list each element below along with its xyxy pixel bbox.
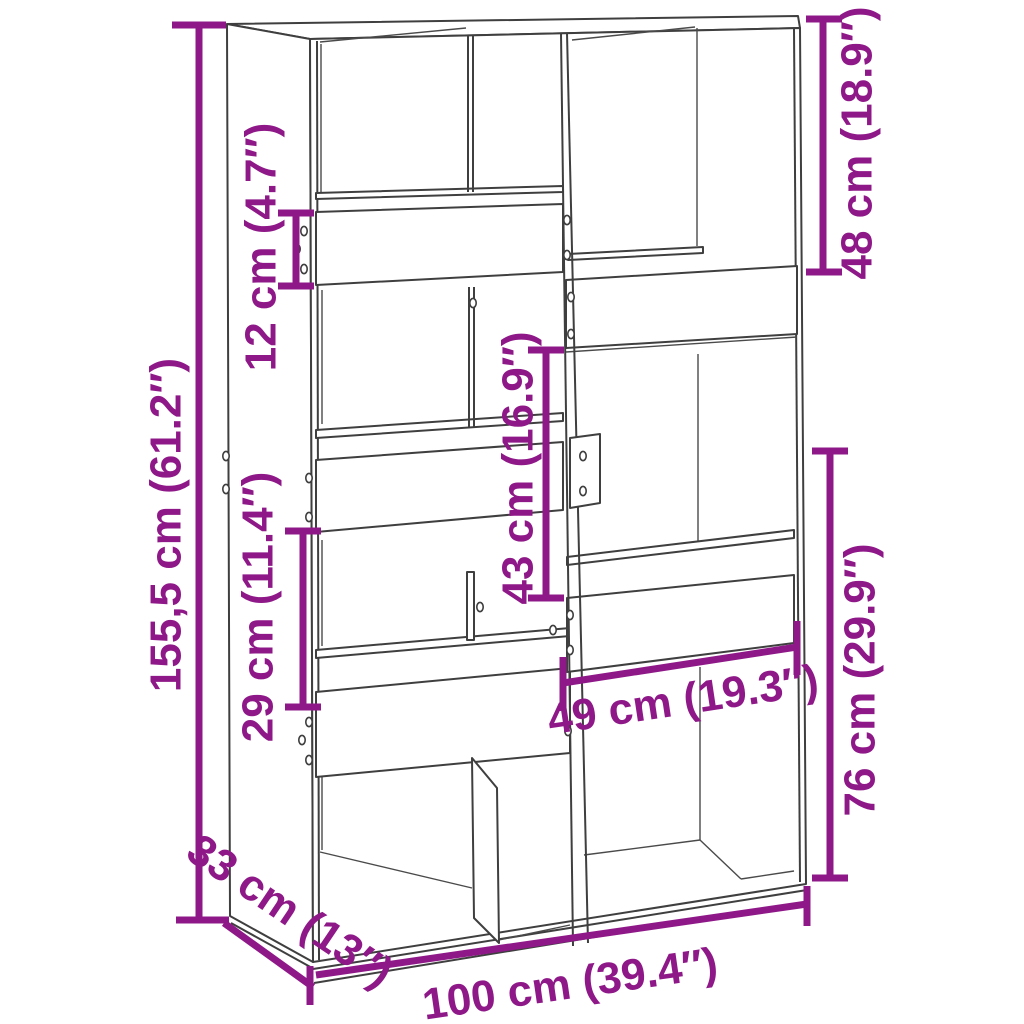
shelf-rail-label: 12 cm (4.7″) [237, 123, 286, 372]
middle-opening-label: 43 cm (16.9″) [494, 331, 543, 604]
mid-left-opening-label: 29 cm (11.4″) [234, 472, 283, 743]
connector-plate [570, 434, 600, 508]
diagram-canvas: 155,5 cm (61.2″) 12 cm (4.7″) 48 cm (18.… [0, 0, 1024, 1024]
dimension-upper-right-opening: 48 cm (18.9″) [806, 6, 882, 279]
diagram-page: 155,5 cm (61.2″) 12 cm (4.7″) 48 cm (18.… [0, 0, 1024, 1024]
overall-height-label: 155,5 cm (61.2″) [142, 358, 191, 692]
upper-right-opening-label: 48 cm (18.9″) [833, 6, 882, 279]
dimension-lower-right-opening: 76 cm (29.9″) [812, 451, 885, 878]
bottom-left-divider [472, 758, 499, 943]
support-strip [467, 572, 474, 640]
lower-right-opening-label: 76 cm (29.9″) [836, 543, 885, 816]
dimension-overall-height: 155,5 cm (61.2″) [142, 25, 230, 920]
